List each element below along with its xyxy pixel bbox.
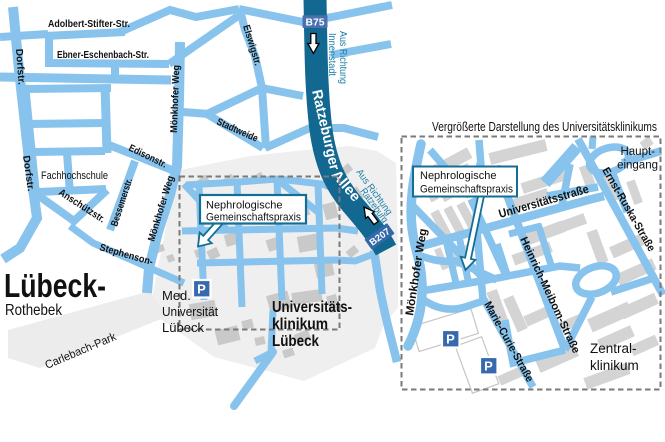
svg-text:klinikum: klinikum: [272, 316, 328, 333]
svg-text:Rothebek: Rothebek: [5, 302, 63, 319]
svg-text:B75: B75: [306, 16, 325, 28]
svg-text:Nephrologische: Nephrologische: [420, 170, 496, 182]
svg-text:Aus Richtung: Aus Richtung: [337, 31, 348, 84]
svg-text:Med.: Med.: [162, 288, 191, 303]
svg-text:P: P: [197, 282, 206, 297]
svg-text:Gemeinschaftspraxis: Gemeinschaftspraxis: [420, 184, 513, 196]
svg-text:Ebner-Eschenbach-Str.: Ebner-Eschenbach-Str.: [57, 50, 149, 61]
svg-text:Lübeck: Lübeck: [272, 333, 319, 350]
svg-text:eingang: eingang: [617, 160, 658, 172]
svg-text:Vergrößerte Darstellung des Un: Vergrößerte Darstellung des Universitäts…: [432, 120, 657, 134]
svg-text:klinikum: klinikum: [590, 358, 639, 373]
svg-text:P: P: [446, 332, 455, 347]
svg-text:Nephrologische: Nephrologische: [206, 200, 282, 212]
svg-text:P: P: [484, 359, 493, 374]
svg-text:Lübeck: Lübeck: [162, 320, 204, 335]
svg-text:Lübeck-: Lübeck-: [4, 267, 106, 304]
svg-text:Universitäts-: Universitäts-: [272, 299, 352, 316]
svg-text:Gemeinschaftspraxis: Gemeinschaftspraxis: [206, 212, 301, 224]
svg-text:Fachhochschule: Fachhochschule: [41, 170, 108, 182]
svg-text:Zentral-: Zentral-: [590, 341, 637, 356]
svg-text:Universität: Universität: [162, 304, 218, 319]
svg-text:Haupt-: Haupt-: [620, 146, 655, 158]
svg-text:Innenstadt: Innenstadt: [326, 33, 337, 76]
svg-text:Adolbert-Stifter-Str.: Adolbert-Stifter-Str.: [48, 19, 130, 30]
